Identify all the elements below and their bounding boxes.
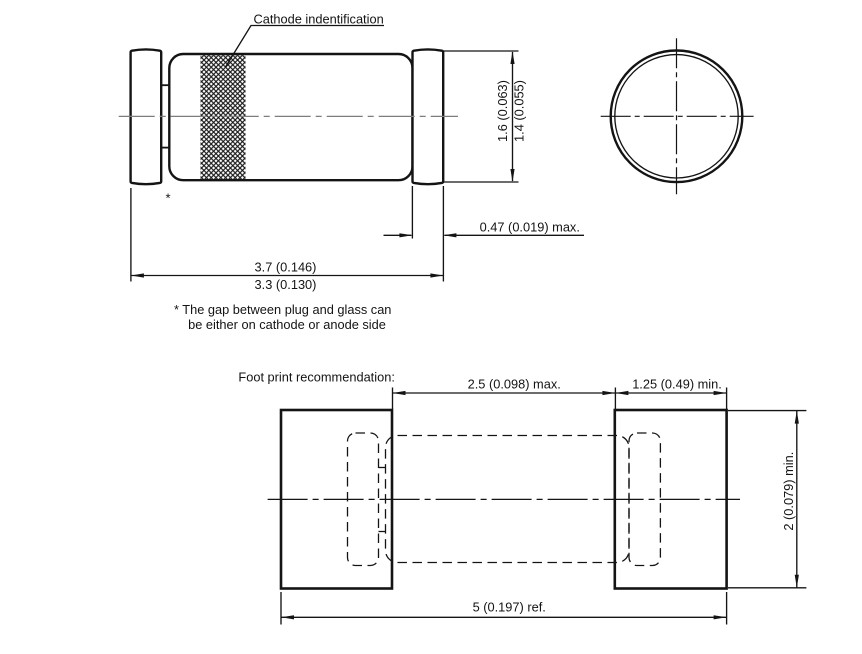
svg-text:Foot print recommendation:: Foot print recommendation: — [238, 369, 394, 384]
svg-text:1.6 (0.063): 1.6 (0.063) — [495, 80, 510, 142]
svg-text:0.47 (0.019) max.: 0.47 (0.019) max. — [480, 220, 580, 235]
svg-text:Cathode indentification: Cathode indentification — [254, 12, 384, 27]
svg-text:5 (0.197) ref.: 5 (0.197) ref. — [473, 600, 546, 615]
svg-text:be either on cathode or anode: be either on cathode or anode side — [188, 317, 386, 332]
svg-text:3.3 (0.130): 3.3 (0.130) — [255, 277, 317, 292]
svg-text:* The gap between plug and gla: * The gap between plug and glass can — [174, 302, 391, 317]
svg-text:1.25 (0.49) min.: 1.25 (0.49) min. — [632, 377, 722, 392]
svg-text:2 (0.079) min.: 2 (0.079) min. — [781, 452, 796, 531]
svg-text:*: * — [166, 191, 171, 206]
svg-text:2.5 (0.098) max.: 2.5 (0.098) max. — [468, 376, 561, 391]
svg-text:3.7 (0.146): 3.7 (0.146) — [255, 259, 317, 274]
svg-text:1.4 (0.055): 1.4 (0.055) — [511, 80, 526, 142]
